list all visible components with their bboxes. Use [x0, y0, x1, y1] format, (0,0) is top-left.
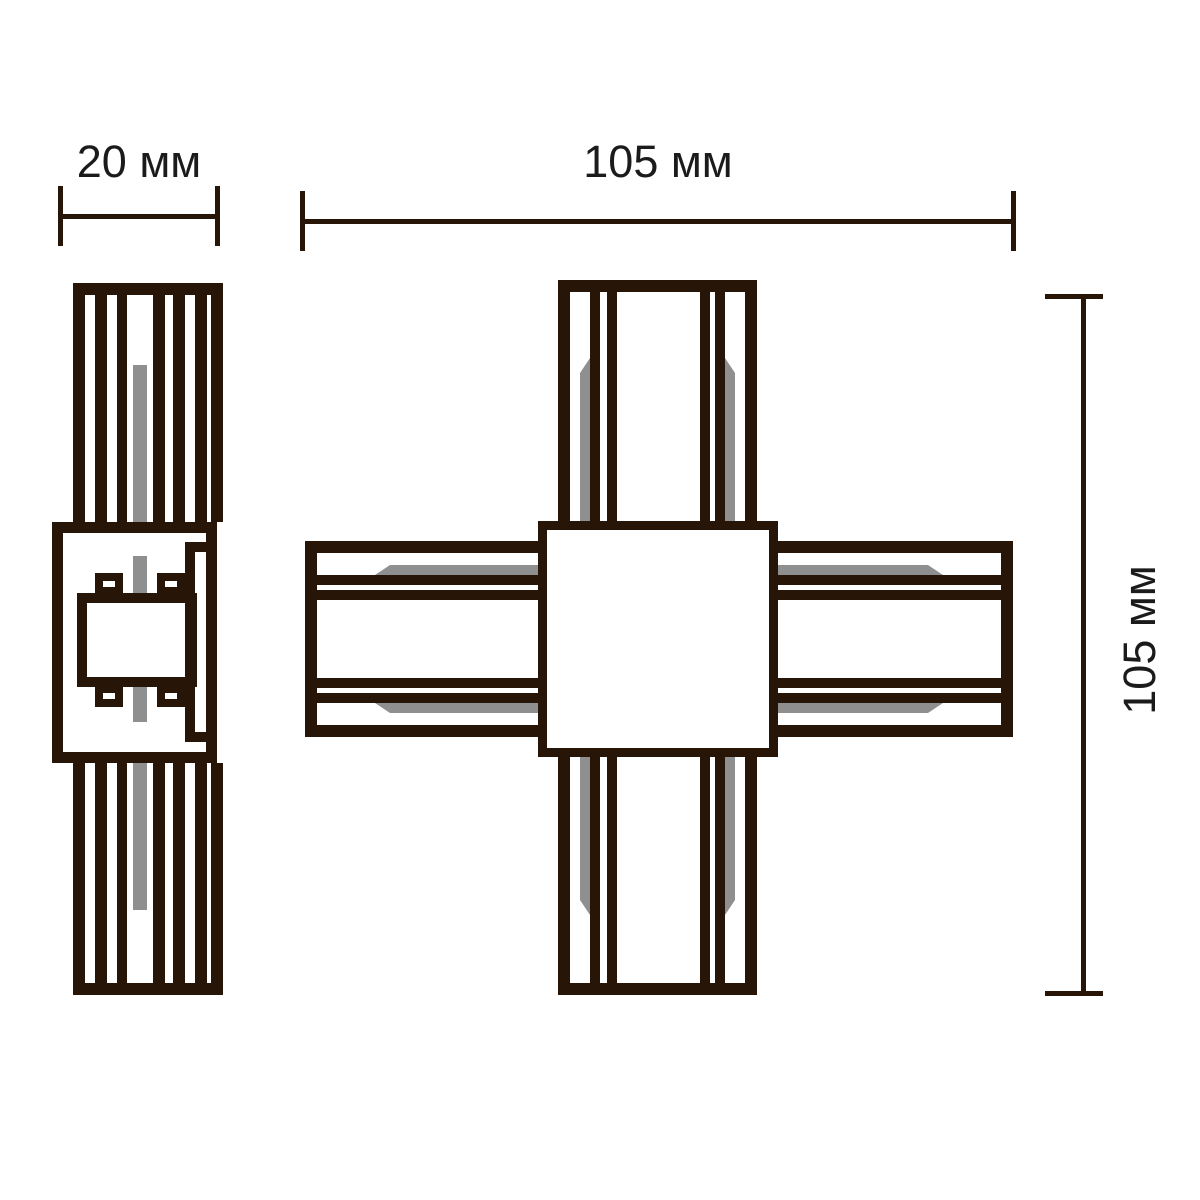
side-view-contact-tab-bottom-right — [157, 685, 185, 707]
front-view-bottom-arm-cap — [558, 983, 757, 995]
front-width-dimension-tick-left — [300, 191, 305, 251]
front-view-left-arm-conductor-top — [375, 565, 548, 575]
side-view-contact-tab-top-right — [157, 573, 185, 595]
side-view-top-rail-cap — [73, 283, 223, 295]
side-width-dimension-line — [60, 214, 218, 219]
front-width-dimension-line — [302, 219, 1013, 224]
front-width-dimension-label: 105 мм — [558, 138, 758, 186]
side-view-top-rail — [73, 283, 223, 522]
front-height-dimension-label: 105 мм — [1116, 540, 1164, 740]
side-view-connector-body — [52, 522, 217, 763]
side-view-contact-tab-bottom-left — [95, 685, 123, 707]
front-view-top-arm-conductor-left — [580, 358, 590, 531]
front-view-left-arm-conductor-bottom — [375, 703, 548, 713]
front-width-dimension-tick-right — [1011, 191, 1016, 251]
front-view-bottom-arm-conductor-left — [580, 747, 590, 915]
front-height-dimension-line — [1081, 296, 1086, 994]
side-width-dimension-tick-right — [215, 186, 220, 246]
front-view-right-arm — [768, 541, 1013, 737]
side-view-side-slot-bottom — [185, 732, 206, 742]
front-view-right-arm-cap — [1001, 541, 1013, 737]
front-view-top-arm-cap — [558, 280, 757, 292]
front-view-left-arm — [305, 541, 548, 737]
front-view-bottom-arm-conductor-right — [725, 747, 735, 915]
side-view-bottom-conductor-strip — [133, 763, 147, 910]
front-height-dimension-tick-top — [1045, 294, 1103, 299]
side-view-side-slot-top — [185, 542, 206, 552]
front-view-right-arm-conductor-top — [768, 565, 943, 575]
front-view-left-arm-cap — [305, 541, 317, 737]
side-view-bottom-rail-cap — [73, 983, 223, 995]
technical-drawing-canvas: 20 мм 105 мм 105 мм — [0, 0, 1200, 1200]
side-view-top-conductor-strip — [133, 365, 147, 522]
side-view-side-slot-wall — [185, 542, 195, 742]
front-view-top-arm — [558, 280, 757, 531]
front-view-top-arm-conductor-right — [725, 358, 735, 531]
side-view-contact-block — [77, 593, 197, 687]
side-view-contact-tab-top-left — [95, 573, 123, 595]
side-view-body-conductor-top — [133, 556, 147, 593]
side-view-bottom-rail — [73, 763, 223, 995]
side-view-body-conductor-bottom — [133, 687, 147, 722]
side-width-dimension-label: 20 мм — [39, 138, 239, 186]
front-view-center-housing — [538, 521, 778, 757]
side-width-dimension-tick-left — [58, 186, 63, 246]
front-view-right-arm-conductor-bottom — [768, 703, 943, 713]
front-height-dimension-tick-bottom — [1045, 991, 1103, 996]
front-view-bottom-arm — [558, 747, 757, 995]
